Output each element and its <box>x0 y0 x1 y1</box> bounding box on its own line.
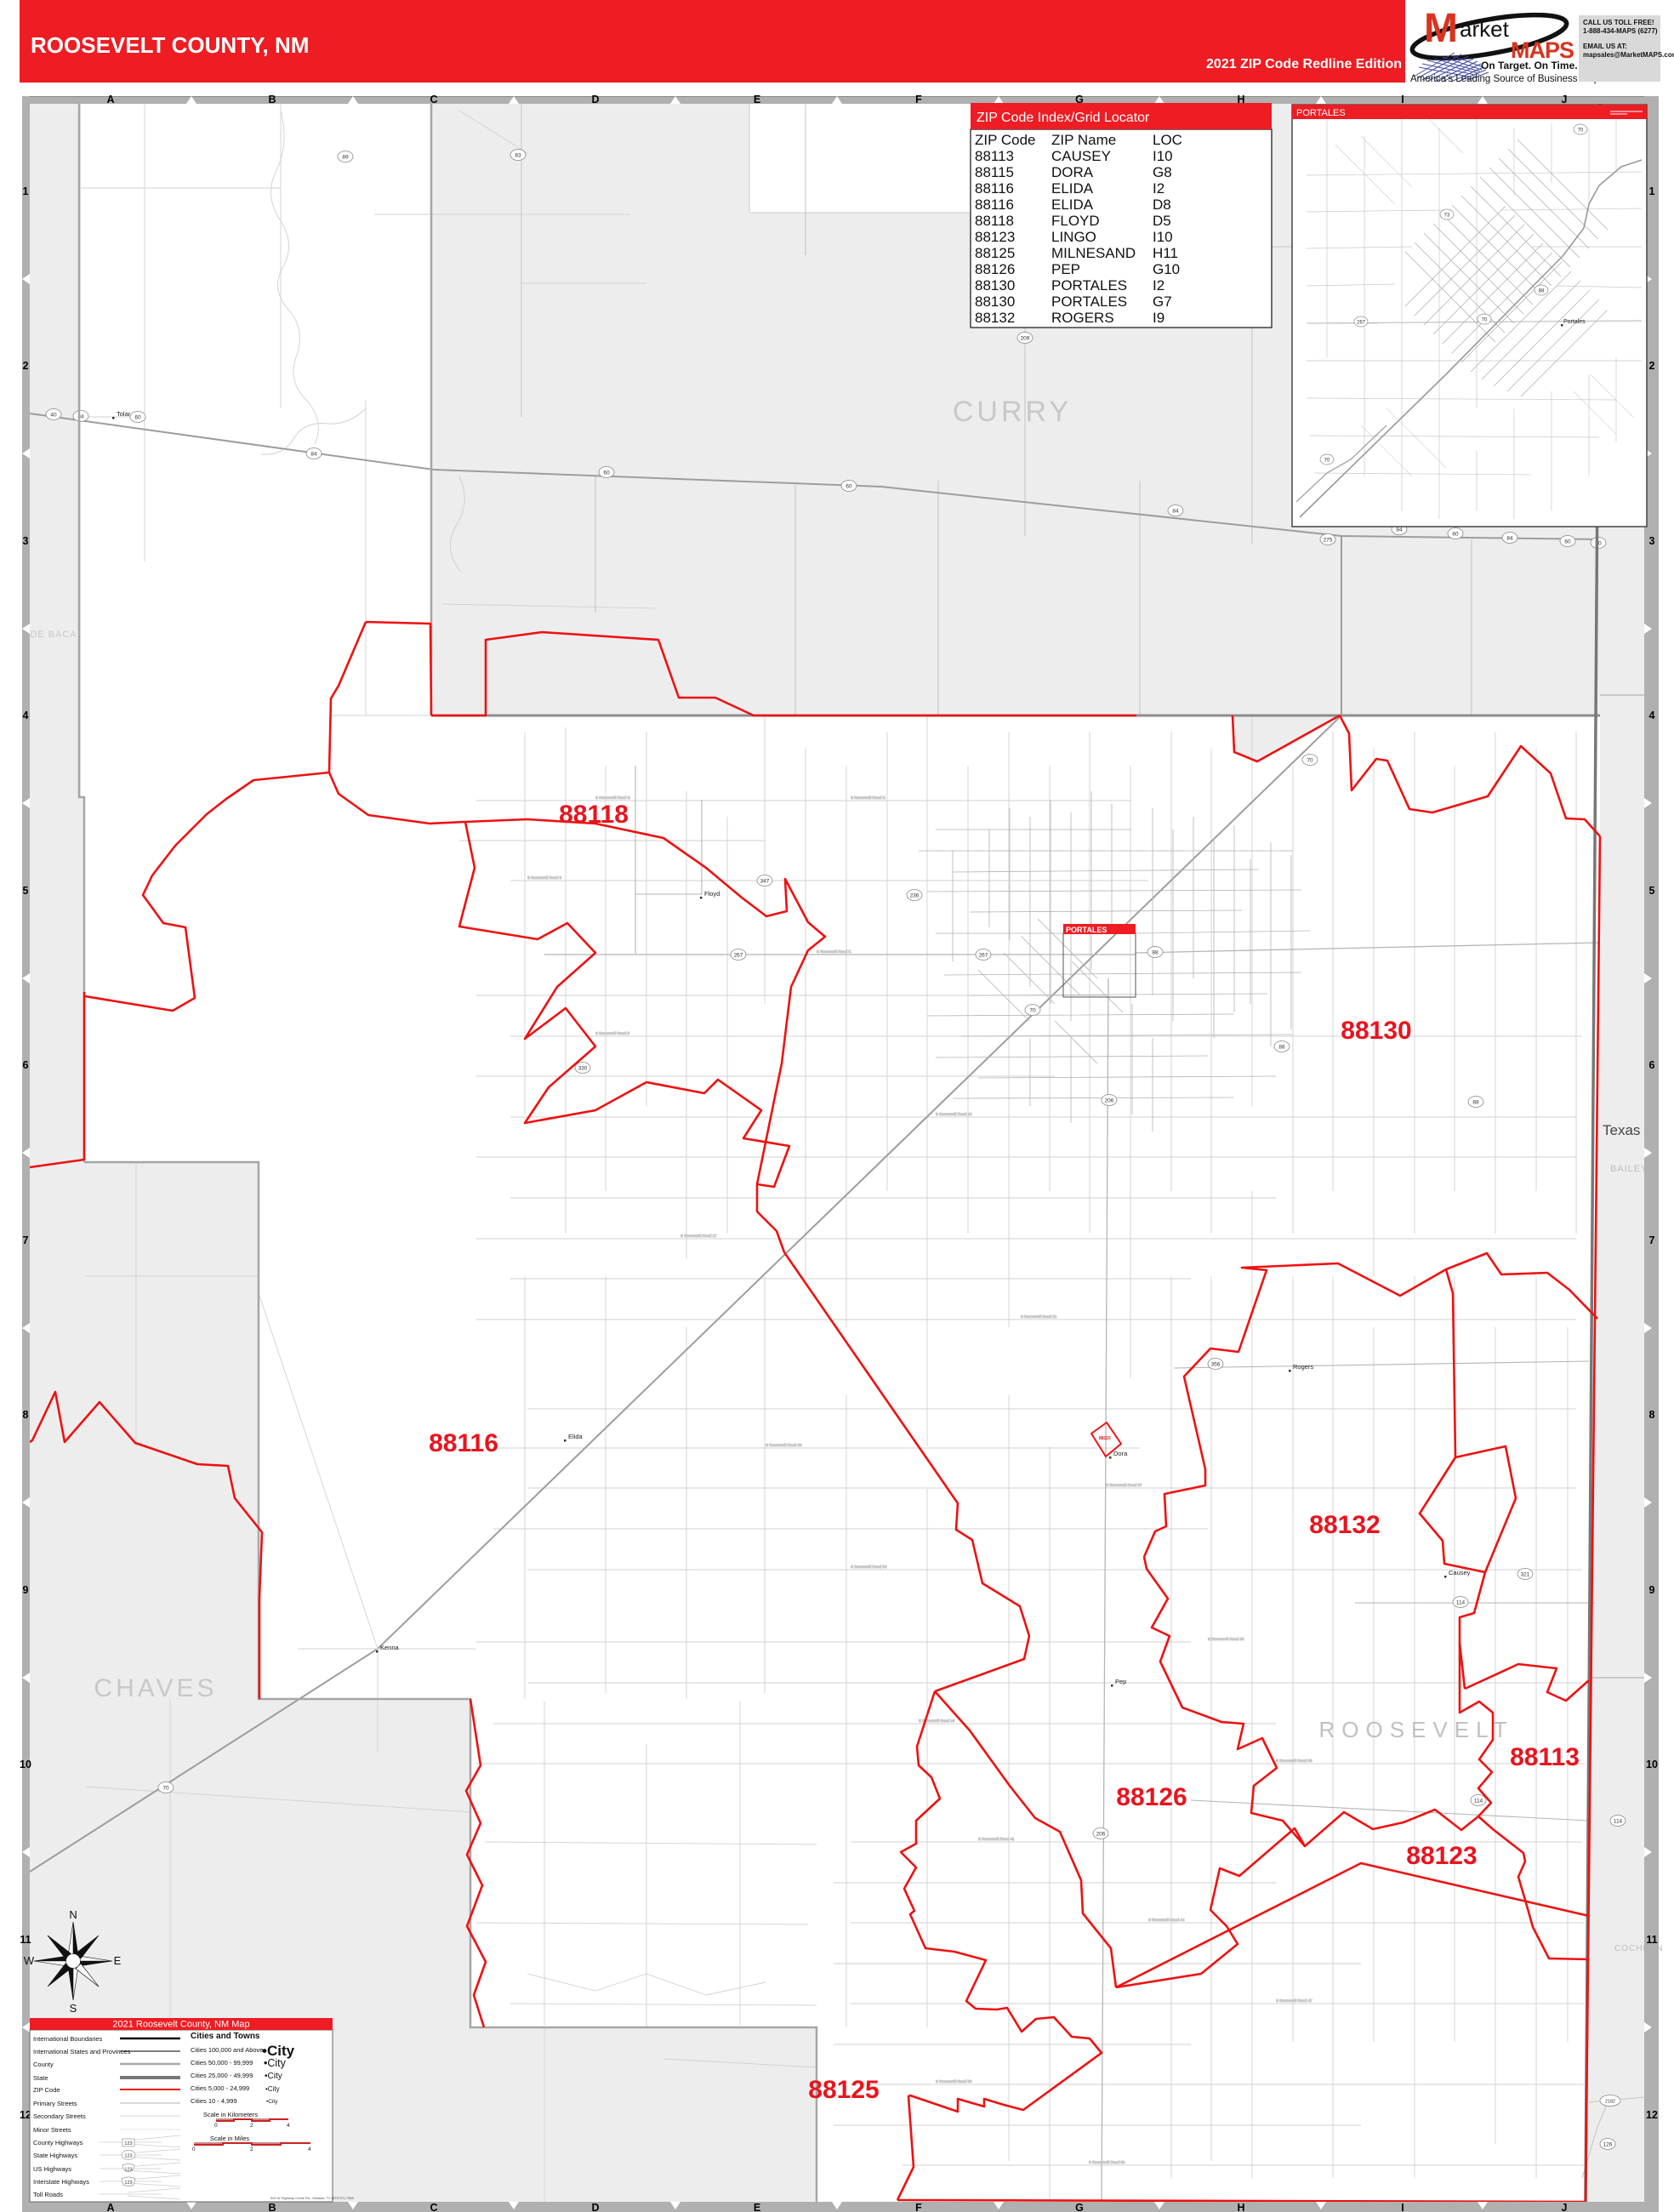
svg-text:2182: 2182 <box>1605 2100 1615 2105</box>
svg-text:A: A <box>106 2202 114 2212</box>
svg-text:EMAIL US AT:: EMAIL US AT: <box>1583 43 1627 50</box>
svg-text:arket: arket <box>1460 16 1510 42</box>
svg-text:•City: •City <box>266 2099 278 2105</box>
svg-text:Rogers: Rogers <box>1293 1363 1313 1371</box>
svg-text:County Highways: County Highways <box>33 2139 83 2146</box>
svg-text:70: 70 <box>1324 459 1330 464</box>
svg-text:88132: 88132 <box>975 310 1015 326</box>
svg-text:ELIDA: ELIDA <box>1051 197 1094 213</box>
svg-text:CHAVES: CHAVES <box>94 1674 217 1702</box>
svg-text:ROOSEVELT: ROOSEVELT <box>1318 1717 1513 1742</box>
svg-text:S Roosevelt Road 25: S Roosevelt Road 25 <box>766 1443 802 1447</box>
svg-text:W: W <box>24 1954 35 1967</box>
svg-text:347: 347 <box>760 879 770 885</box>
svg-text:Kenna: Kenna <box>380 1644 400 1651</box>
svg-text:88123: 88123 <box>975 229 1015 245</box>
svg-text:G: G <box>1075 2202 1084 2212</box>
svg-text:•City: •City <box>265 2085 280 2093</box>
svg-text:356: 356 <box>1211 1362 1221 1368</box>
svg-text:Minor Streets: Minor Streets <box>33 2126 71 2134</box>
svg-text:I: I <box>1401 2202 1404 2212</box>
svg-text:S Roosevelt Road N: S Roosevelt Road N <box>851 795 885 800</box>
svg-text:8: 8 <box>23 1409 29 1421</box>
svg-text:6: 6 <box>1649 1059 1655 1071</box>
svg-text:88: 88 <box>1472 1100 1479 1106</box>
svg-text:70: 70 <box>1482 318 1488 323</box>
svg-text:88113: 88113 <box>975 148 1014 164</box>
svg-text:S Roosevelt Road 38: S Roosevelt Road 38 <box>1276 1759 1312 1763</box>
svg-text:10: 10 <box>20 1759 31 1770</box>
svg-text:C: C <box>430 94 437 105</box>
svg-text:LINGO: LINGO <box>1051 229 1096 245</box>
svg-text:Cities 100,000 and Above: Cities 100,000 and Above <box>191 2046 263 2054</box>
svg-text:S Roosevelt Road 6: S Roosevelt Road 6 <box>527 875 562 880</box>
svg-text:On Target. On Time.: On Target. On Time. <box>1481 60 1578 71</box>
svg-text:Pep: Pep <box>1115 1678 1126 1685</box>
svg-text:PORTALES: PORTALES <box>1051 294 1127 310</box>
svg-text:S Roosevelt Road 53: S Roosevelt Road 53 <box>1089 2160 1125 2164</box>
svg-text:2: 2 <box>250 2146 253 2152</box>
svg-text:E: E <box>114 1954 122 1967</box>
svg-text:123: 123 <box>124 2168 132 2173</box>
svg-text:88118: 88118 <box>559 801 629 829</box>
svg-text:500 W Highway Creek Rd., Midla: 500 W Highway Creek Rd., Midland, TX (87… <box>270 2196 355 2200</box>
svg-text:ELIDA: ELIDA <box>1051 180 1094 197</box>
svg-text:5: 5 <box>1649 885 1655 897</box>
svg-text:I10: I10 <box>1153 148 1173 164</box>
svg-text:2: 2 <box>23 360 29 372</box>
svg-text:Cities and Towns: Cities and Towns <box>191 2032 260 2041</box>
svg-text:Scale in Miles: Scale in Miles <box>210 2135 250 2142</box>
svg-text:84: 84 <box>1506 536 1513 542</box>
svg-text:88125: 88125 <box>975 245 1015 261</box>
svg-text:F: F <box>915 94 922 105</box>
svg-text:S Roosevelt Road 21: S Roosevelt Road 21 <box>1021 1314 1057 1319</box>
svg-text:206: 206 <box>1105 1098 1114 1104</box>
svg-text:S Roosevelt Road 8: S Roosevelt Road 8 <box>595 1031 630 1035</box>
svg-text:70: 70 <box>1307 758 1313 764</box>
svg-text:PEP: PEP <box>1051 261 1080 277</box>
svg-text:Dora: Dora <box>1113 1450 1128 1457</box>
svg-text:1: 1 <box>23 185 29 197</box>
svg-text:3: 3 <box>1649 535 1655 547</box>
svg-text:88116: 88116 <box>429 1429 498 1457</box>
svg-text:G7: G7 <box>1153 294 1172 310</box>
svg-text:S Roosevelt Road K: S Roosevelt Road K <box>817 949 851 954</box>
svg-text:CURRY: CURRY <box>953 396 1072 428</box>
svg-text:S Roosevelt Road 41: S Roosevelt Road 41 <box>978 1837 1015 1841</box>
svg-text:7: 7 <box>1649 1234 1655 1246</box>
svg-text:267: 267 <box>734 953 743 959</box>
svg-text:267: 267 <box>979 953 988 959</box>
svg-text:4: 4 <box>308 2146 311 2152</box>
svg-text:I9: I9 <box>1153 310 1164 326</box>
svg-text:84: 84 <box>1396 527 1403 533</box>
svg-text:DE BACA: DE BACA <box>30 630 77 640</box>
svg-text:123: 123 <box>124 2154 132 2159</box>
svg-text:M: M <box>1424 6 1458 51</box>
svg-text:S Roosevelt Road 30: S Roosevelt Road 30 <box>851 1565 887 1569</box>
svg-text:114: 114 <box>1614 1819 1623 1825</box>
svg-text:11: 11 <box>1646 1934 1657 1946</box>
svg-text:206: 206 <box>1096 1832 1106 1838</box>
svg-text:70: 70 <box>1029 1008 1036 1014</box>
svg-text:Interstate Highways: Interstate Highways <box>33 2178 89 2186</box>
svg-text:0: 0 <box>192 2146 196 2152</box>
svg-text:275: 275 <box>1324 538 1333 544</box>
svg-text:D8: D8 <box>1153 197 1171 213</box>
svg-text:State: State <box>33 2074 48 2082</box>
svg-text:330: 330 <box>578 1066 588 1072</box>
svg-text:LOC: LOC <box>1153 132 1182 148</box>
svg-text:H11: H11 <box>1153 245 1178 261</box>
svg-text:F: F <box>915 2202 922 2212</box>
svg-text:Cities 50,000 - 99,999: Cities 50,000 - 99,999 <box>191 2059 253 2067</box>
svg-text:88130: 88130 <box>1341 1017 1411 1045</box>
svg-text:7: 7 <box>23 1234 29 1246</box>
svg-text:73: 73 <box>1444 214 1450 219</box>
svg-text:88116: 88116 <box>975 180 1014 197</box>
svg-text:88113: 88113 <box>1510 1743 1580 1771</box>
svg-text:•City: •City <box>265 2072 282 2081</box>
svg-text:114: 114 <box>1474 1799 1483 1804</box>
svg-text:84: 84 <box>310 452 317 458</box>
svg-text:D: D <box>591 94 599 105</box>
svg-text:Floyd: Floyd <box>704 890 720 898</box>
svg-text:6: 6 <box>23 1059 29 1071</box>
svg-text:MILNESAND: MILNESAND <box>1051 245 1136 261</box>
svg-text:4: 4 <box>287 2123 290 2129</box>
svg-text:ZIP Code: ZIP Code <box>33 2086 60 2094</box>
svg-text:88126: 88126 <box>1116 1783 1187 1811</box>
svg-text:60: 60 <box>1564 539 1571 545</box>
svg-text:S: S <box>70 2002 77 2015</box>
svg-text:D: D <box>591 2202 599 2212</box>
svg-text:H: H <box>1237 2202 1244 2212</box>
svg-text:126: 126 <box>1603 2142 1613 2148</box>
svg-text:10: 10 <box>1646 1759 1658 1770</box>
svg-text:PORTALES: PORTALES <box>1296 108 1346 118</box>
svg-text:88125: 88125 <box>808 2076 879 2104</box>
svg-text:1: 1 <box>1649 185 1655 197</box>
svg-text:County: County <box>33 2061 54 2068</box>
svg-text:40: 40 <box>50 413 57 419</box>
svg-text:2021 Roosevelt County, NM Map: 2021 Roosevelt County, NM Map <box>112 2020 249 2030</box>
svg-text:ZIP Code Index/Grid Locator: ZIP Code Index/Grid Locator <box>976 111 1150 125</box>
svg-text:International States and Provi: International States and Provinces <box>33 2048 130 2055</box>
svg-text:C: C <box>430 2202 437 2212</box>
svg-text:S Roosevelt Road N: S Roosevelt Road N <box>595 795 630 800</box>
svg-text:236: 236 <box>910 893 920 899</box>
svg-text:G10: G10 <box>1153 261 1180 277</box>
svg-text:International Boundaries: International Boundaries <box>33 2035 103 2043</box>
svg-text:70: 70 <box>1578 128 1584 134</box>
svg-text:CALL US TOLL FREE!: CALL US TOLL FREE! <box>1583 19 1654 26</box>
svg-text:Tolar: Tolar <box>117 410 131 418</box>
svg-text:•City: •City <box>264 2057 287 2069</box>
svg-text:J: J <box>1562 94 1568 105</box>
svg-text:Portales: Portales <box>1563 319 1586 325</box>
svg-text:I2: I2 <box>1153 277 1164 294</box>
svg-text:1-888-434-MAPS (6277): 1-888-434-MAPS (6277) <box>1583 27 1658 35</box>
svg-text:60: 60 <box>134 415 141 421</box>
svg-text:123: 123 <box>124 2181 132 2186</box>
svg-text:2: 2 <box>250 2123 253 2129</box>
svg-text:60: 60 <box>603 470 610 476</box>
svg-text:mapsales@MarketMAPS.com: mapsales@MarketMAPS.com <box>1583 51 1674 59</box>
svg-text:PORTALES: PORTALES <box>1051 277 1127 294</box>
svg-text:Texas: Texas <box>1603 1122 1640 1138</box>
svg-text:Elida: Elida <box>568 1433 584 1440</box>
svg-text:Cities 5,000 - 24,999: Cities 5,000 - 24,999 <box>191 2084 249 2092</box>
svg-text:B: B <box>268 2202 276 2212</box>
svg-text:S Roosevelt Road 33: S Roosevelt Road 33 <box>1208 1637 1244 1641</box>
svg-text:3: 3 <box>23 535 29 547</box>
svg-text:88118: 88118 <box>975 213 1014 229</box>
svg-text:S Roosevelt Road 13: S Roosevelt Road 13 <box>936 1112 972 1116</box>
svg-text:S Roosevelt Road 50: S Roosevelt Road 50 <box>936 2079 972 2084</box>
svg-text:State Highways: State Highways <box>33 2152 77 2159</box>
svg-text:BAILEY: BAILEY <box>1610 1164 1648 1174</box>
svg-text:E: E <box>754 2202 760 2212</box>
svg-text:DORA: DORA <box>1051 164 1094 180</box>
svg-text:0: 0 <box>214 2123 218 2129</box>
svg-text:S Roosevelt Road 47: S Roosevelt Road 47 <box>1276 1998 1312 2003</box>
svg-text:88116: 88116 <box>975 197 1014 213</box>
svg-text:88123: 88123 <box>1406 1842 1477 1870</box>
svg-text:89: 89 <box>342 155 349 161</box>
svg-text:4: 4 <box>23 710 29 721</box>
svg-text:88132: 88132 <box>1309 1511 1380 1539</box>
svg-text:123: 123 <box>124 2141 132 2146</box>
svg-text:Secondary Streets: Secondary Streets <box>33 2112 86 2120</box>
svg-text:4: 4 <box>1649 710 1655 721</box>
svg-text:60: 60 <box>1452 532 1459 538</box>
svg-text:83: 83 <box>515 153 521 159</box>
svg-text:Cities 25,000 - 49,999: Cities 25,000 - 49,999 <box>191 2072 253 2079</box>
svg-text:12: 12 <box>1646 2109 1658 2121</box>
svg-text:267: 267 <box>1357 321 1366 326</box>
svg-text:PORTALES: PORTALES <box>1066 926 1107 934</box>
svg-text:8: 8 <box>1649 1409 1655 1421</box>
svg-text:114: 114 <box>1456 1600 1466 1606</box>
svg-text:I2: I2 <box>1153 180 1164 197</box>
svg-text:S Roosevelt Road 44: S Roosevelt Road 44 <box>1148 1918 1185 1922</box>
svg-text:321: 321 <box>1521 1572 1530 1578</box>
svg-text:S Roosevelt Road 17: S Roosevelt Road 17 <box>680 1234 717 1238</box>
svg-text:88115: 88115 <box>1099 1436 1111 1441</box>
svg-text:70: 70 <box>162 1786 169 1792</box>
svg-text:9: 9 <box>1649 1584 1655 1596</box>
svg-text:B: B <box>268 94 276 105</box>
svg-text:Toll Roads: Toll Roads <box>33 2191 63 2198</box>
svg-text:Causey: Causey <box>1449 1569 1471 1576</box>
svg-text:CAUSEY: CAUSEY <box>1051 148 1111 164</box>
svg-text:Cities 10 - 4,999: Cities 10 - 4,999 <box>191 2097 237 2105</box>
svg-text:88115: 88115 <box>975 164 1014 180</box>
svg-text:5: 5 <box>23 885 29 897</box>
svg-text:Scale in Kilometers: Scale in Kilometers <box>203 2111 258 2118</box>
svg-text:209: 209 <box>1021 336 1030 342</box>
svg-text:84: 84 <box>1172 509 1179 515</box>
svg-text:A: A <box>106 94 114 105</box>
svg-text:ROGERS: ROGERS <box>1051 310 1114 326</box>
svg-text:N: N <box>69 1908 77 1921</box>
svg-text:ZIP Code: ZIP Code <box>975 132 1036 148</box>
svg-text:G8: G8 <box>1153 164 1172 180</box>
svg-text:88: 88 <box>1152 950 1159 956</box>
svg-text:S Roosevelt Road 27: S Roosevelt Road 27 <box>1106 1483 1142 1487</box>
svg-text:2021 ZIP Code Redline Edition: 2021 ZIP Code Redline Edition <box>1206 57 1402 71</box>
svg-text:J: J <box>1562 2202 1568 2212</box>
svg-text:America's Leading Source of B: America's Leading Source of Business Map… <box>1410 74 1604 84</box>
svg-text:88126: 88126 <box>975 261 1015 277</box>
svg-text:FLOYD: FLOYD <box>1051 213 1100 229</box>
svg-text:2: 2 <box>1649 360 1655 372</box>
svg-text:9: 9 <box>23 1584 29 1596</box>
svg-text:I10: I10 <box>1153 229 1173 245</box>
svg-text:I: I <box>1401 94 1404 105</box>
svg-text:11: 11 <box>20 1934 31 1946</box>
svg-text:88130: 88130 <box>975 277 1015 294</box>
svg-text:Primary Streets: Primary Streets <box>33 2100 77 2107</box>
svg-text:60: 60 <box>846 484 852 490</box>
svg-text:E: E <box>754 94 760 105</box>
svg-text:D5: D5 <box>1153 213 1171 229</box>
svg-text:88: 88 <box>1539 289 1545 294</box>
svg-text:88130: 88130 <box>975 294 1015 310</box>
svg-text:88: 88 <box>1278 1045 1285 1051</box>
svg-text:US Highways: US Highways <box>33 2165 71 2173</box>
svg-text:ZIP Name: ZIP Name <box>1051 132 1116 148</box>
svg-text:ROOSEVELT COUNTY, NM: ROOSEVELT COUNTY, NM <box>31 32 309 58</box>
